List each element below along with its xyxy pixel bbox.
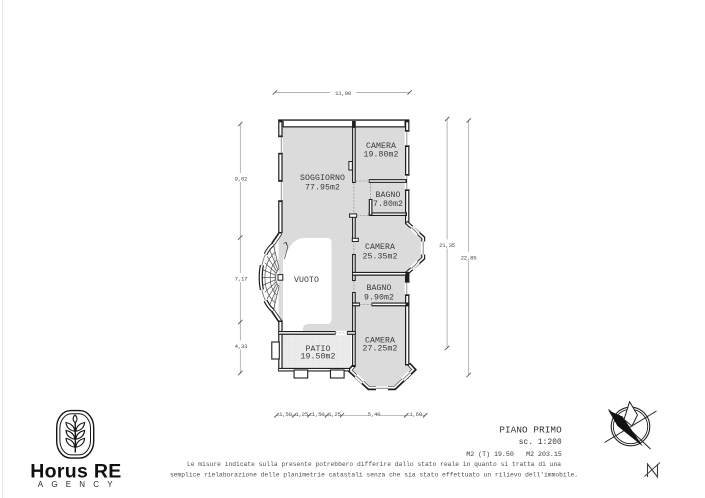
- svg-text:21,35: 21,35: [439, 242, 456, 249]
- svg-text:BAGNO: BAGNO: [366, 284, 391, 293]
- svg-text:5,40: 5,40: [368, 411, 381, 418]
- svg-text:25.35m2: 25.35m2: [362, 252, 397, 261]
- svg-text:PIANO PRIMO: PIANO PRIMO: [499, 424, 562, 435]
- svg-text:1,60: 1,60: [409, 411, 422, 418]
- svg-text:11,00: 11,00: [335, 90, 352, 97]
- svg-text:sc. 1:200: sc. 1:200: [519, 439, 562, 447]
- svg-text:semplice rielaborazione delle: semplice rielaborazione delle planimetri…: [170, 472, 578, 479]
- svg-text:9.90m2: 9.90m2: [364, 293, 394, 302]
- svg-text:22,85: 22,85: [461, 254, 478, 261]
- svg-text:1,25: 1,25: [328, 411, 341, 418]
- svg-text:1,50: 1,50: [312, 411, 325, 418]
- svg-text:9,62: 9,62: [235, 175, 248, 182]
- svg-text:19.50m2: 19.50m2: [300, 352, 335, 361]
- svg-text:19.80m2: 19.80m2: [363, 150, 398, 159]
- svg-text:77.95m2: 77.95m2: [305, 183, 340, 192]
- svg-text:SOGGIORNO: SOGGIORNO: [300, 174, 345, 183]
- svg-text:M2 (T) 19.50: M2 (T) 19.50: [466, 451, 514, 458]
- svg-text:7.80m2: 7.80m2: [373, 200, 403, 209]
- svg-text:CAMERA: CAMERA: [365, 243, 395, 252]
- svg-text:4,33: 4,33: [235, 343, 248, 350]
- svg-text:Le misure indicate sulla prese: Le misure indicate sulla presente potreb…: [187, 461, 561, 468]
- svg-text:27.25m2: 27.25m2: [362, 345, 397, 354]
- svg-text:7,17: 7,17: [235, 275, 248, 282]
- svg-text:1,25: 1,25: [295, 411, 308, 418]
- svg-text:M2 203.15: M2 203.15: [526, 451, 562, 458]
- svg-text:VUOTO: VUOTO: [294, 276, 319, 285]
- svg-text:BAGNO: BAGNO: [375, 191, 400, 200]
- svg-text:AGENCY: AGENCY: [38, 480, 121, 489]
- svg-text:1,50: 1,50: [279, 411, 292, 418]
